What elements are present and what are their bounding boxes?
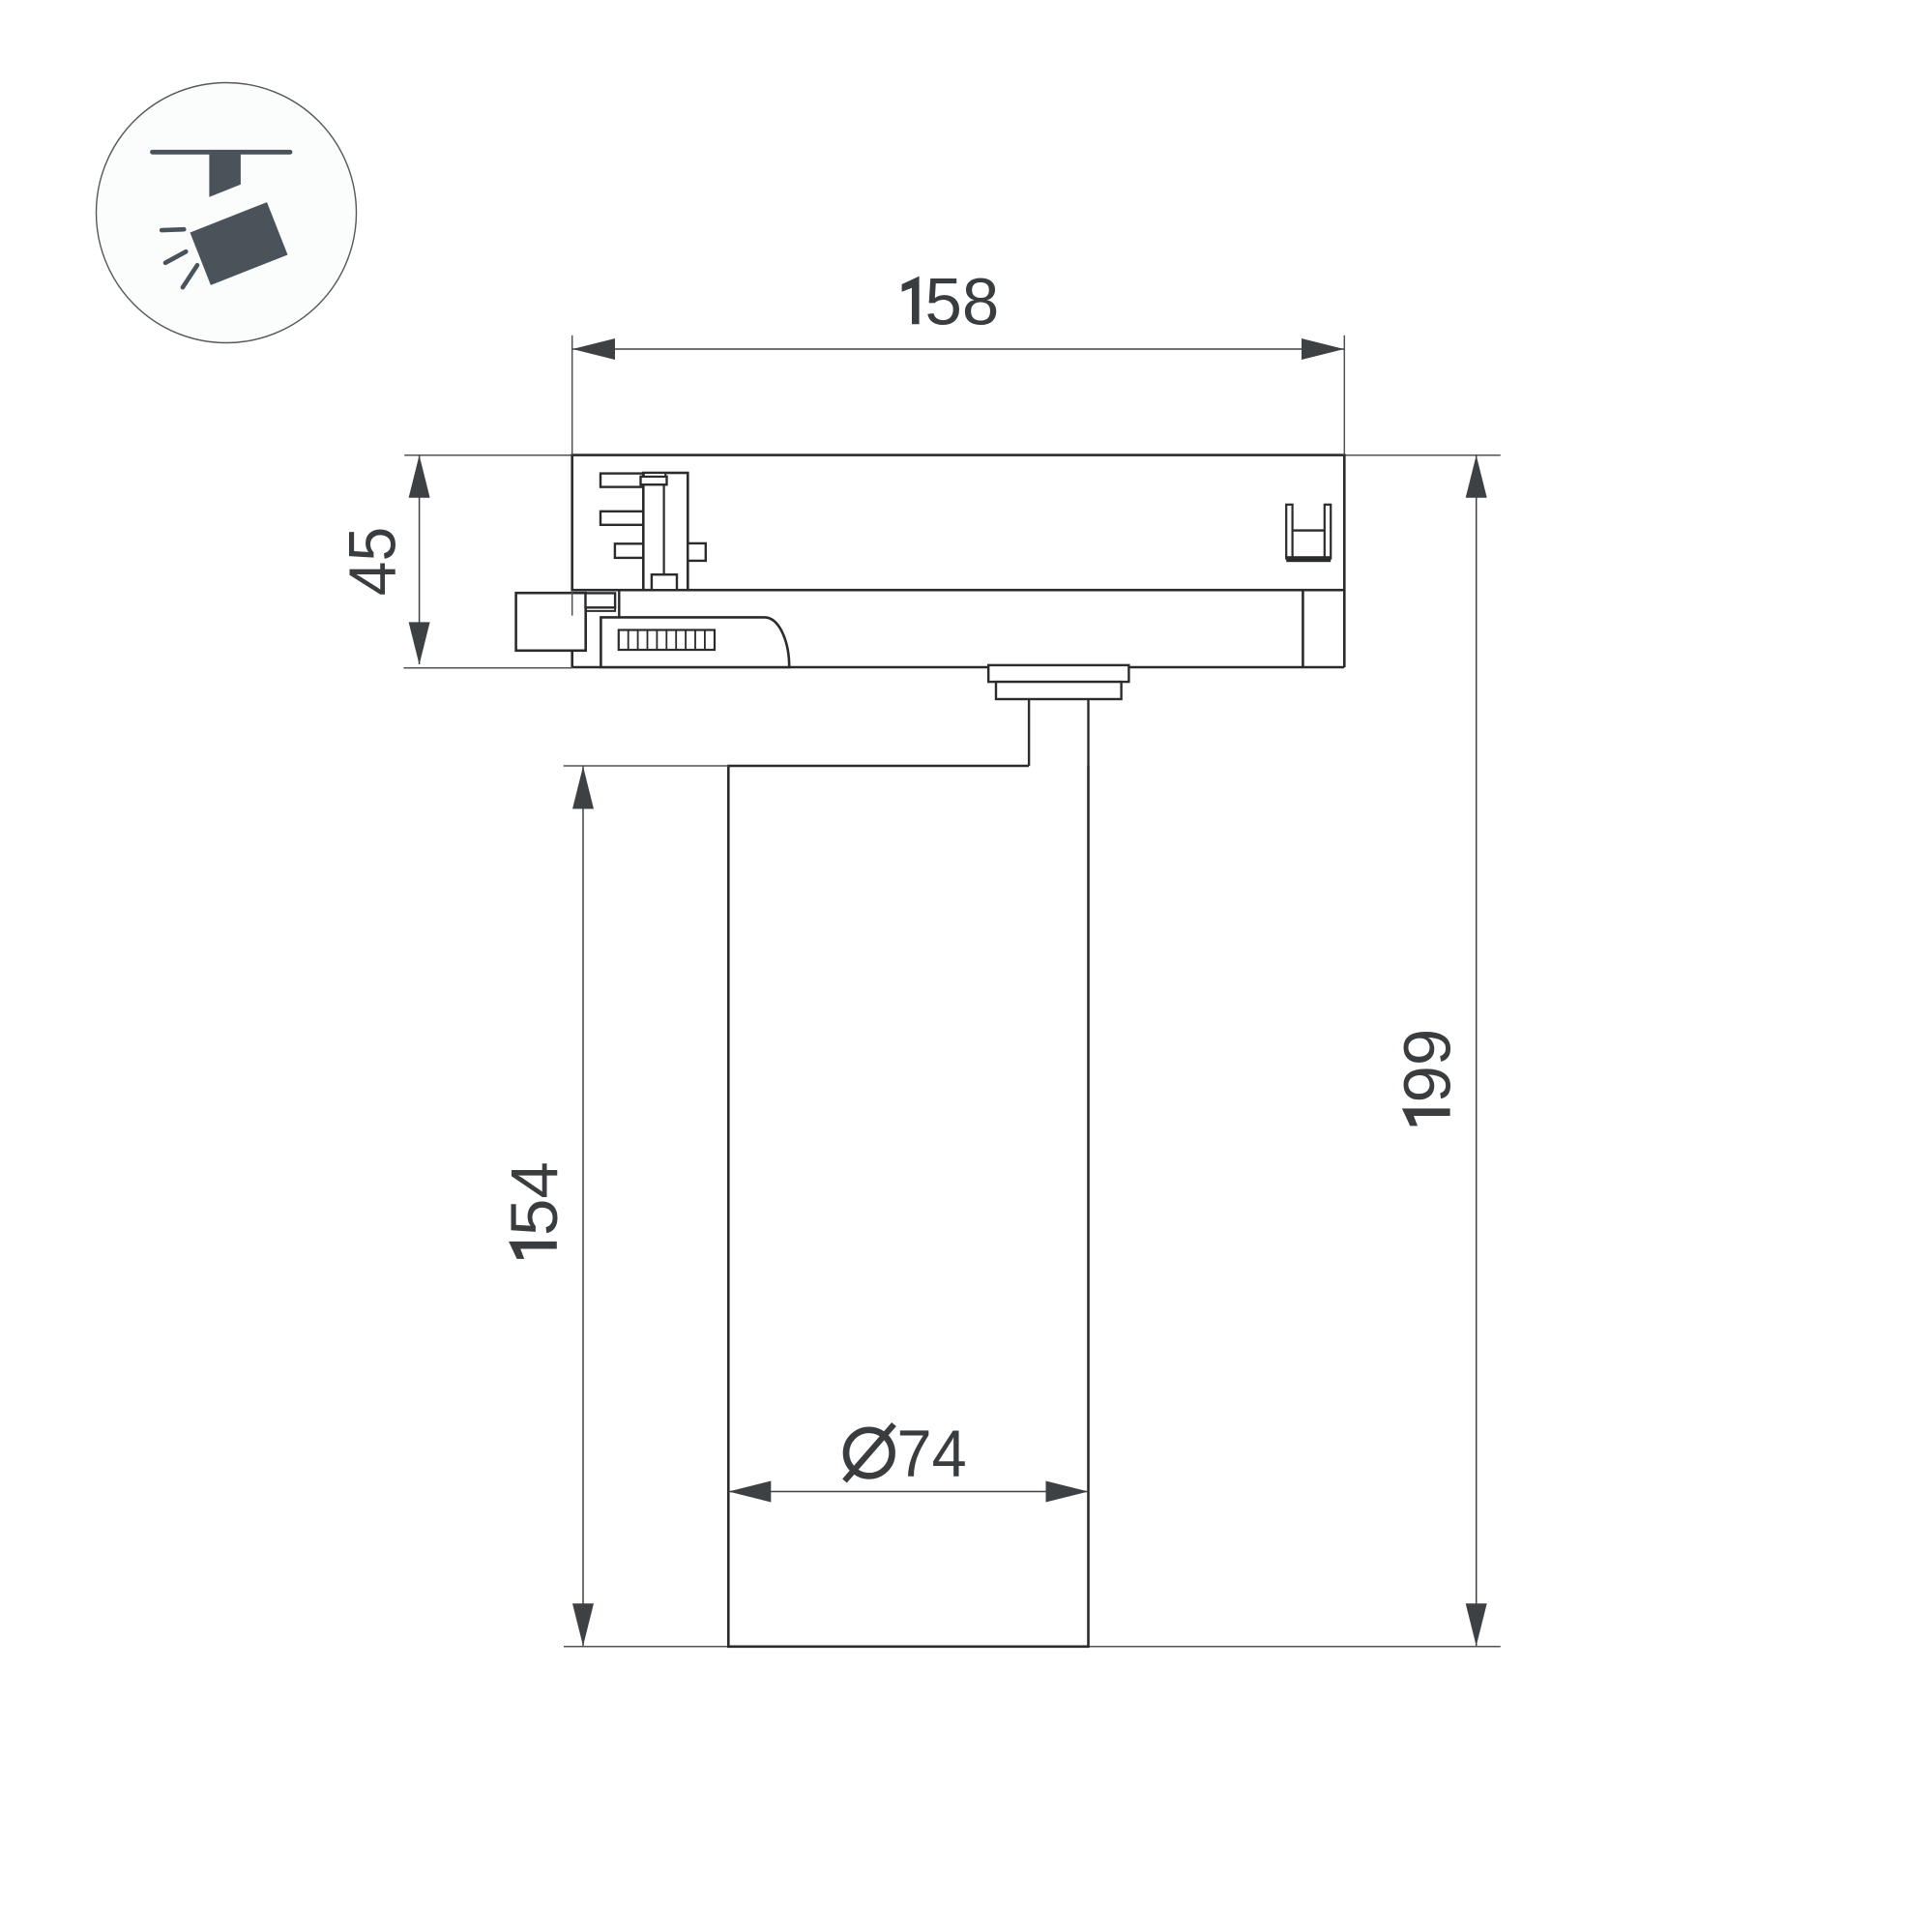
svg-text:54: 54 <box>497 1161 571 1236</box>
svg-text:58: 58 <box>925 264 1000 338</box>
svg-text:74: 74 <box>897 1416 967 1490</box>
svg-text:99: 99 <box>1390 1029 1465 1103</box>
svg-text:45: 45 <box>336 527 410 596</box>
